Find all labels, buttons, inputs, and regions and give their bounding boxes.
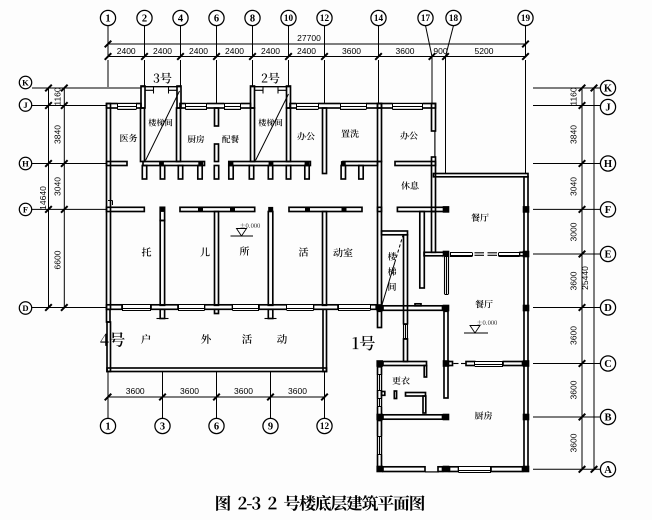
svg-text:3600: 3600 xyxy=(234,386,253,396)
svg-text:6: 6 xyxy=(214,422,219,433)
svg-text:F: F xyxy=(605,205,611,216)
svg-text:2400: 2400 xyxy=(153,46,172,56)
svg-text:3840: 3840 xyxy=(569,125,579,144)
svg-text:E: E xyxy=(604,250,611,261)
svg-text:2400: 2400 xyxy=(117,46,136,56)
svg-text:2400: 2400 xyxy=(297,46,316,56)
svg-text:3600: 3600 xyxy=(396,46,415,56)
svg-text:H: H xyxy=(604,159,612,170)
svg-text:3000: 3000 xyxy=(569,222,579,241)
svg-text:1: 1 xyxy=(105,14,110,25)
svg-text:9: 9 xyxy=(268,422,273,433)
svg-text:3840: 3840 xyxy=(53,125,63,144)
svg-text:H: H xyxy=(22,158,29,168)
svg-text:J: J xyxy=(605,103,610,114)
svg-text:C: C xyxy=(604,359,612,370)
svg-text:17: 17 xyxy=(421,13,431,23)
svg-text:12: 12 xyxy=(320,13,330,23)
svg-text:J: J xyxy=(23,100,28,110)
svg-text:3600: 3600 xyxy=(180,386,199,396)
svg-text:1160: 1160 xyxy=(53,87,63,106)
svg-text:14: 14 xyxy=(374,13,384,23)
svg-text:3040: 3040 xyxy=(53,177,63,196)
svg-text:19: 19 xyxy=(521,13,531,23)
svg-text:2400: 2400 xyxy=(261,46,280,56)
svg-text:A: A xyxy=(604,465,612,476)
svg-text:3600: 3600 xyxy=(569,271,579,290)
svg-text:B: B xyxy=(604,413,611,424)
svg-text:3600: 3600 xyxy=(126,386,145,396)
svg-text:3600: 3600 xyxy=(288,386,307,396)
svg-text:2400: 2400 xyxy=(225,46,244,56)
svg-text:3: 3 xyxy=(160,422,165,433)
svg-text:27700: 27700 xyxy=(297,33,321,43)
svg-text:D: D xyxy=(604,303,612,314)
svg-text:12: 12 xyxy=(320,421,330,431)
svg-text:D: D xyxy=(22,303,28,313)
svg-text:2400: 2400 xyxy=(189,46,208,56)
svg-text:K: K xyxy=(604,84,613,95)
svg-text:K: K xyxy=(22,77,29,87)
svg-text:3040: 3040 xyxy=(569,177,579,196)
svg-text:6600: 6600 xyxy=(53,250,63,269)
svg-text:3600: 3600 xyxy=(569,433,579,452)
svg-text:3600: 3600 xyxy=(569,326,579,345)
svg-text:3600: 3600 xyxy=(342,46,361,56)
svg-text:2: 2 xyxy=(142,14,147,25)
svg-text:1160: 1160 xyxy=(569,87,579,106)
svg-text:5200: 5200 xyxy=(475,46,494,56)
svg-text:3600: 3600 xyxy=(569,380,579,399)
svg-text:8: 8 xyxy=(250,14,255,25)
svg-text:14640: 14640 xyxy=(38,186,48,210)
svg-text:4: 4 xyxy=(178,14,184,25)
svg-text:900: 900 xyxy=(433,46,447,56)
svg-text:10: 10 xyxy=(284,13,294,23)
svg-text:6: 6 xyxy=(214,14,219,25)
svg-text:F: F xyxy=(23,204,28,214)
svg-text:1: 1 xyxy=(105,422,110,433)
svg-text:18: 18 xyxy=(449,13,459,23)
